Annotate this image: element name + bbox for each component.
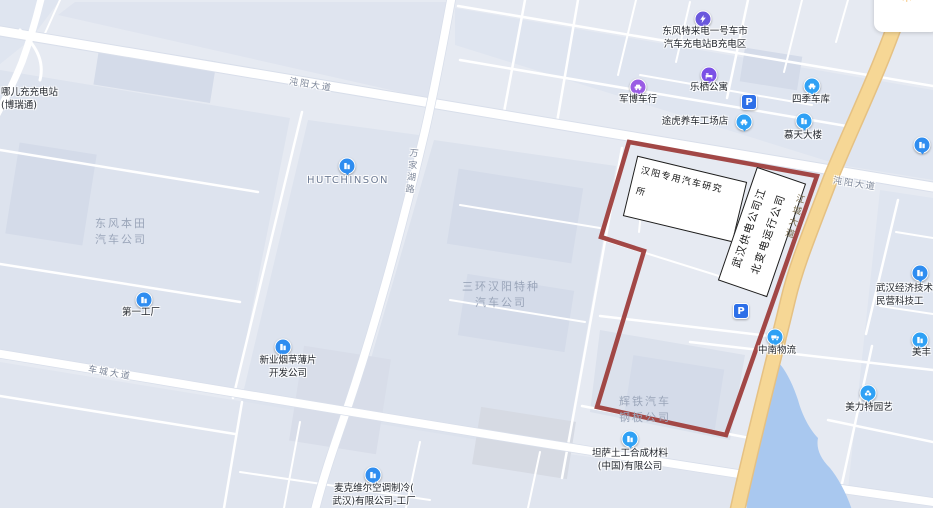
poi-label-meifeng[interactable]: 美丰 <box>912 347 931 360</box>
factory-icon[interactable] <box>365 467 382 484</box>
poi-label-hutchinson[interactable]: HUTCHINSON <box>307 174 389 188</box>
poi-label-meilite[interactable]: 美力特园艺 <box>845 402 893 415</box>
gardening-icon[interactable] <box>860 385 877 402</box>
company-icon[interactable] <box>912 332 929 349</box>
parking-letter: P <box>745 97 752 108</box>
charging-station-icon[interactable] <box>695 11 712 28</box>
car-dealer-icon[interactable] <box>630 79 647 96</box>
poi-label-maikeweier[interactable]: 麦克维尔空调制冷( 武汉)有限公司-工厂 <box>332 483 415 508</box>
map-base-layer <box>0 0 933 508</box>
poi-label-junbo[interactable]: 军博车行 <box>619 94 657 107</box>
garage-icon[interactable] <box>804 78 821 95</box>
poi-label-nar-charging[interactable]: 哪儿充充电站 (博瑞通) <box>1 87 58 113</box>
apartment-icon[interactable] <box>701 67 718 84</box>
building-icon[interactable] <box>796 113 813 130</box>
factory-icon[interactable] <box>136 292 153 309</box>
poi-label-mutian[interactable]: 慕天大楼 <box>784 130 822 143</box>
poi-label-whkfq[interactable]: 武汉经济技术开 民营科技工 <box>876 283 933 309</box>
logistics-truck-icon[interactable] <box>767 329 784 346</box>
poi-label-tuhu[interactable]: 途虎养车工场店 <box>662 116 729 129</box>
parking-letter: P <box>737 306 744 317</box>
area-label-huitie: 辉铁汽车 钢板公司 <box>619 394 671 426</box>
area-label-sanhuan: 三环汉阳特种 汽车公司 <box>462 279 540 311</box>
poi-label-diyi[interactable]: 第一工厂 <box>122 307 160 320</box>
poi-label-xinye[interactable]: 新业烟草薄片 开发公司 <box>259 355 316 381</box>
poi-label-siji[interactable]: 四季车库 <box>792 94 830 107</box>
auto-shop-icon[interactable] <box>736 114 753 131</box>
area-label-dongfeng-honda: 东风本田 汽车公司 <box>95 216 147 248</box>
industrial-park-icon[interactable] <box>912 265 929 282</box>
poi-label-zhongnan[interactable]: 中南物流 <box>758 345 796 358</box>
company-icon[interactable] <box>339 158 356 175</box>
parking-icon[interactable]: P <box>741 94 757 110</box>
parking-icon[interactable]: P <box>733 303 749 319</box>
poi-label-tansa[interactable]: 坦萨土工合成材料 (中国)有限公司 <box>592 448 668 474</box>
company-icon[interactable] <box>622 431 639 448</box>
company-icon[interactable] <box>275 339 292 356</box>
sun-icon: ☀ <box>900 0 913 5</box>
poi-label-telaidian[interactable]: 东风特来电一号车市 汽车充电站B充电区 <box>662 26 748 52</box>
weather-widget[interactable]: ☀ <box>874 0 933 32</box>
map-canvas[interactable]: 汉阳专用汽车研究 所 武汉供电公司江 北变电运行公司 沌阳大道 沌阳大道 万家湖… <box>0 0 933 508</box>
poi-icon[interactable] <box>914 137 931 154</box>
poi-label-lexi[interactable]: 乐栖公寓 <box>690 82 728 95</box>
